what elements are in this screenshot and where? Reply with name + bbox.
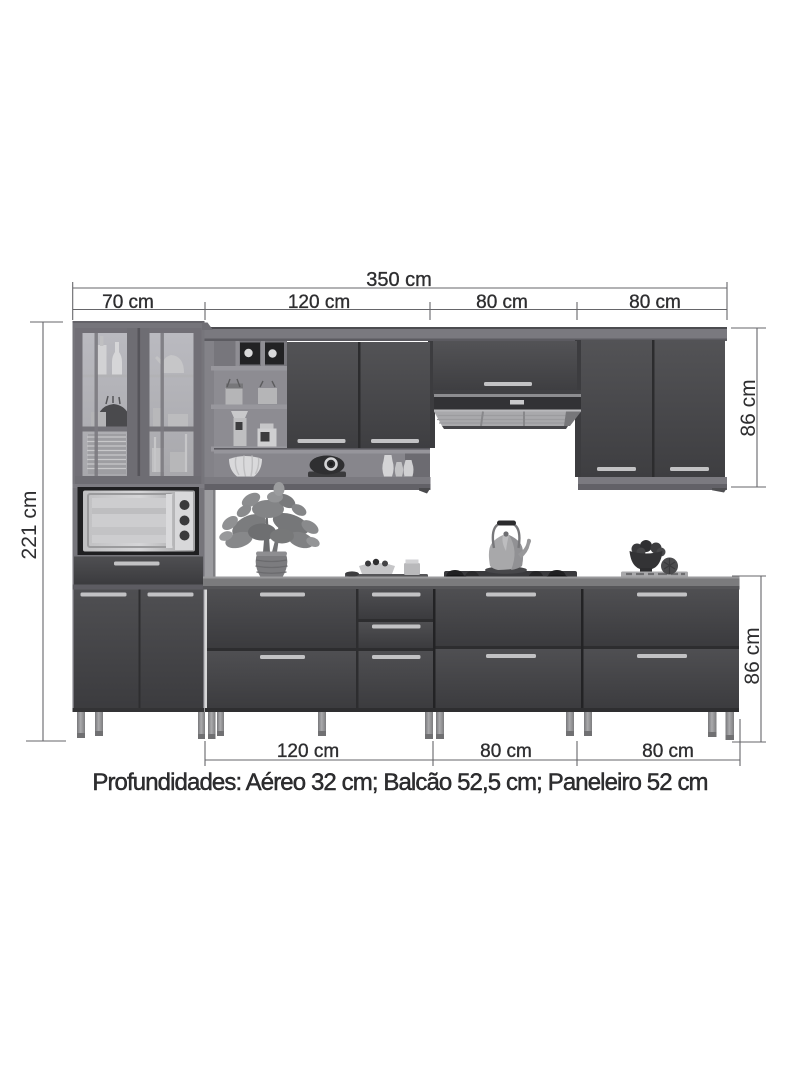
svg-text:80 cm: 80 cm (642, 741, 694, 762)
svg-text:80 cm: 80 cm (476, 292, 528, 313)
svg-text:Profundidades: Aéreo 32 cm; Ba: Profundidades: Aéreo 32 cm; Balcão 52,5 … (92, 769, 707, 796)
svg-text:70 cm: 70 cm (102, 292, 154, 313)
svg-text:86 cm: 86 cm (741, 627, 764, 684)
svg-text:120 cm: 120 cm (288, 292, 350, 313)
svg-text:120 cm: 120 cm (277, 741, 339, 762)
svg-text:221 cm: 221 cm (18, 491, 41, 560)
svg-text:86 cm: 86 cm (737, 379, 760, 436)
svg-text:350 cm: 350 cm (366, 269, 432, 291)
svg-text:80 cm: 80 cm (629, 292, 681, 313)
svg-text:80 cm: 80 cm (480, 741, 532, 762)
